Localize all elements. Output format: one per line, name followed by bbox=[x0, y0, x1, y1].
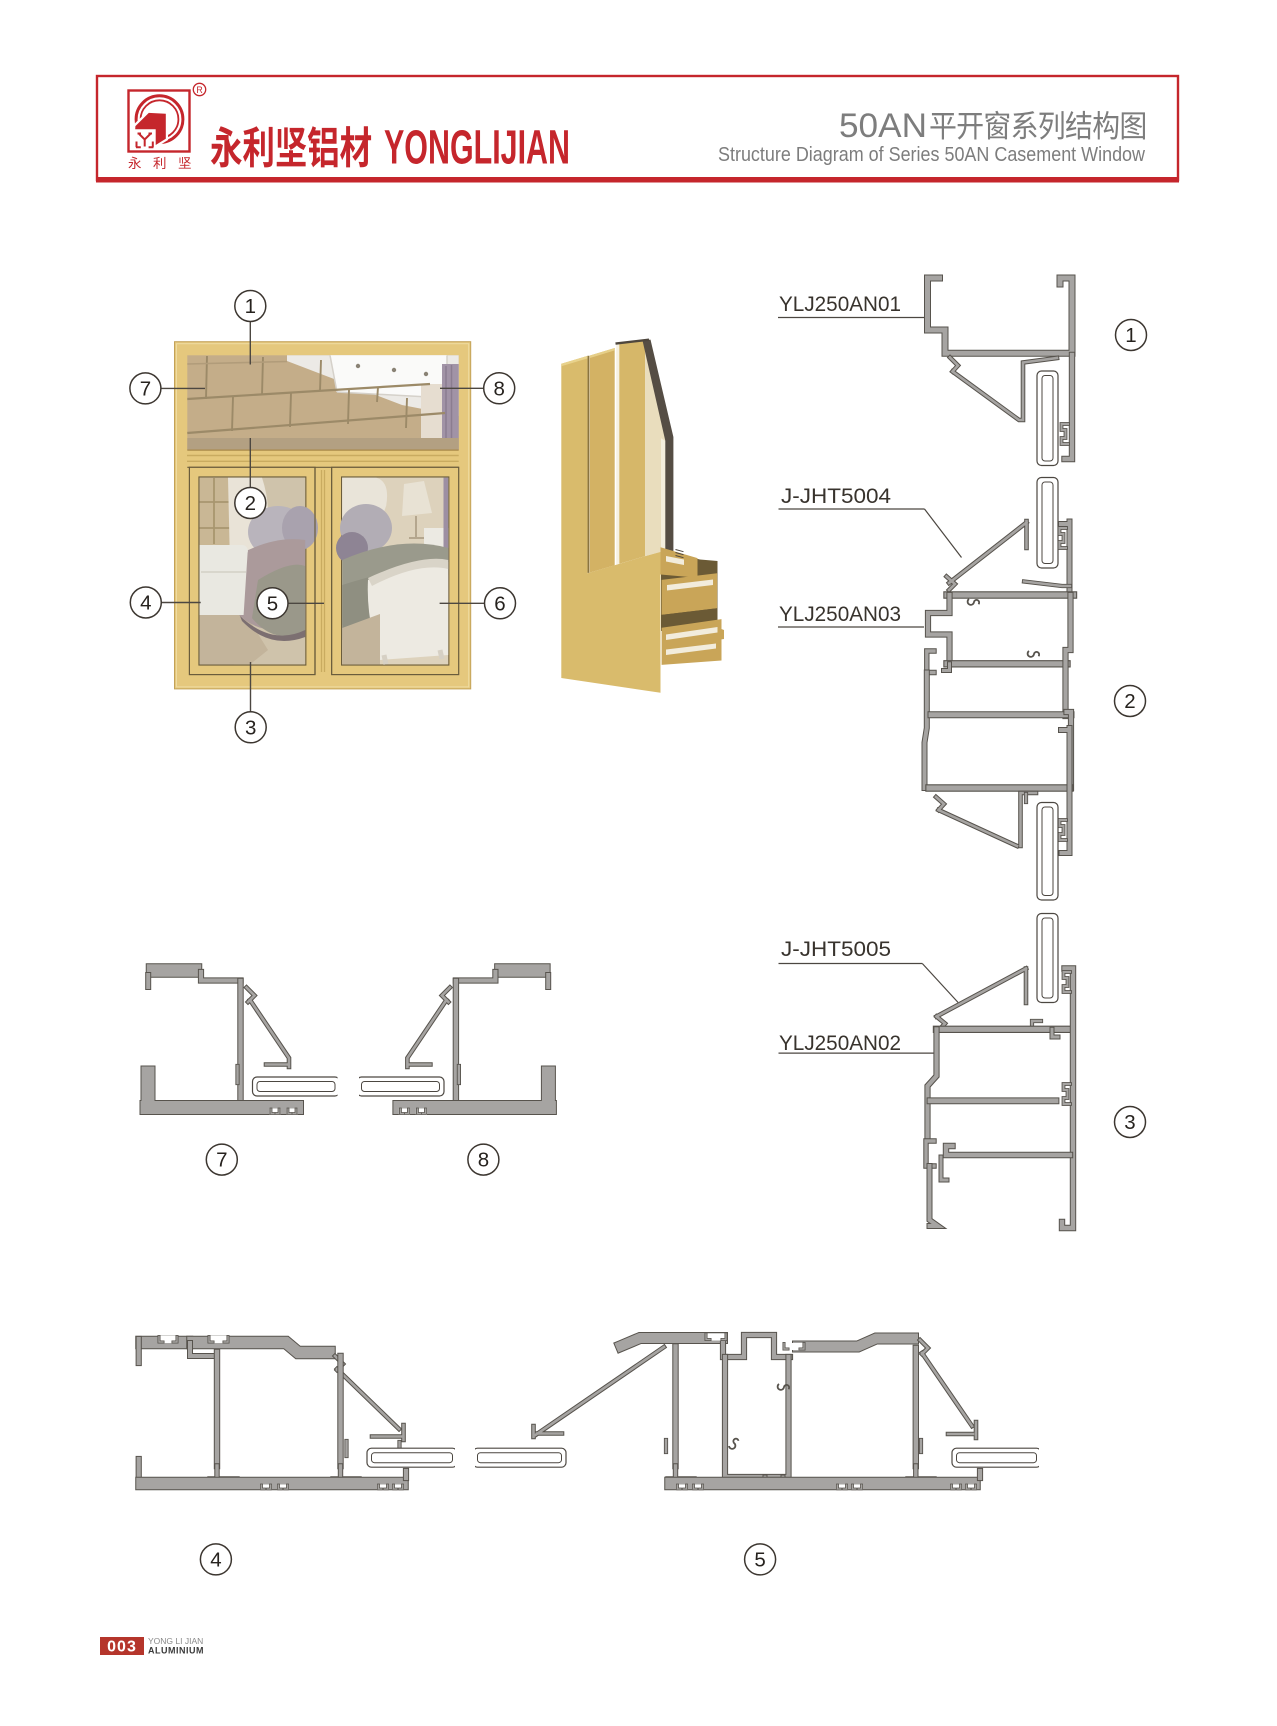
svg-text:1: 1 bbox=[1125, 324, 1136, 347]
svg-text:8: 8 bbox=[493, 377, 504, 400]
svg-text:5: 5 bbox=[267, 592, 278, 615]
svg-text:YLJ250AN03: YLJ250AN03 bbox=[779, 602, 901, 626]
svg-text:3: 3 bbox=[245, 716, 256, 739]
svg-text:YONGLIJIAN: YONGLIJIAN bbox=[384, 122, 570, 175]
svg-text:7: 7 bbox=[216, 1149, 227, 1172]
svg-text:2: 2 bbox=[1124, 690, 1135, 713]
svg-text:7: 7 bbox=[140, 377, 151, 400]
svg-text:J-JHT5004: J-JHT5004 bbox=[781, 484, 891, 508]
svg-text:4: 4 bbox=[140, 592, 151, 615]
svg-text:3: 3 bbox=[1124, 1111, 1135, 1134]
svg-text:YLJ250AN01: YLJ250AN01 bbox=[779, 292, 901, 316]
svg-text:1: 1 bbox=[245, 295, 256, 318]
svg-text:8: 8 bbox=[478, 1149, 489, 1172]
svg-text:Structure Diagram of Series 50: Structure Diagram of Series 50AN Casemen… bbox=[718, 143, 1145, 166]
svg-text:5: 5 bbox=[754, 1548, 765, 1571]
svg-text:50AN: 50AN bbox=[839, 107, 927, 145]
svg-text:YONG LI JIAN: YONG LI JIAN bbox=[148, 1636, 203, 1646]
svg-text:J-JHT5005: J-JHT5005 bbox=[781, 937, 891, 961]
svg-text:4: 4 bbox=[210, 1548, 221, 1571]
svg-text:YLJ250AN02: YLJ250AN02 bbox=[779, 1031, 901, 1055]
svg-text:6: 6 bbox=[494, 592, 505, 615]
svg-text:ALUMINIUM: ALUMINIUM bbox=[148, 1646, 204, 1656]
svg-text:R: R bbox=[196, 85, 202, 95]
svg-text:003: 003 bbox=[107, 1639, 137, 1656]
svg-text:2: 2 bbox=[245, 492, 256, 515]
